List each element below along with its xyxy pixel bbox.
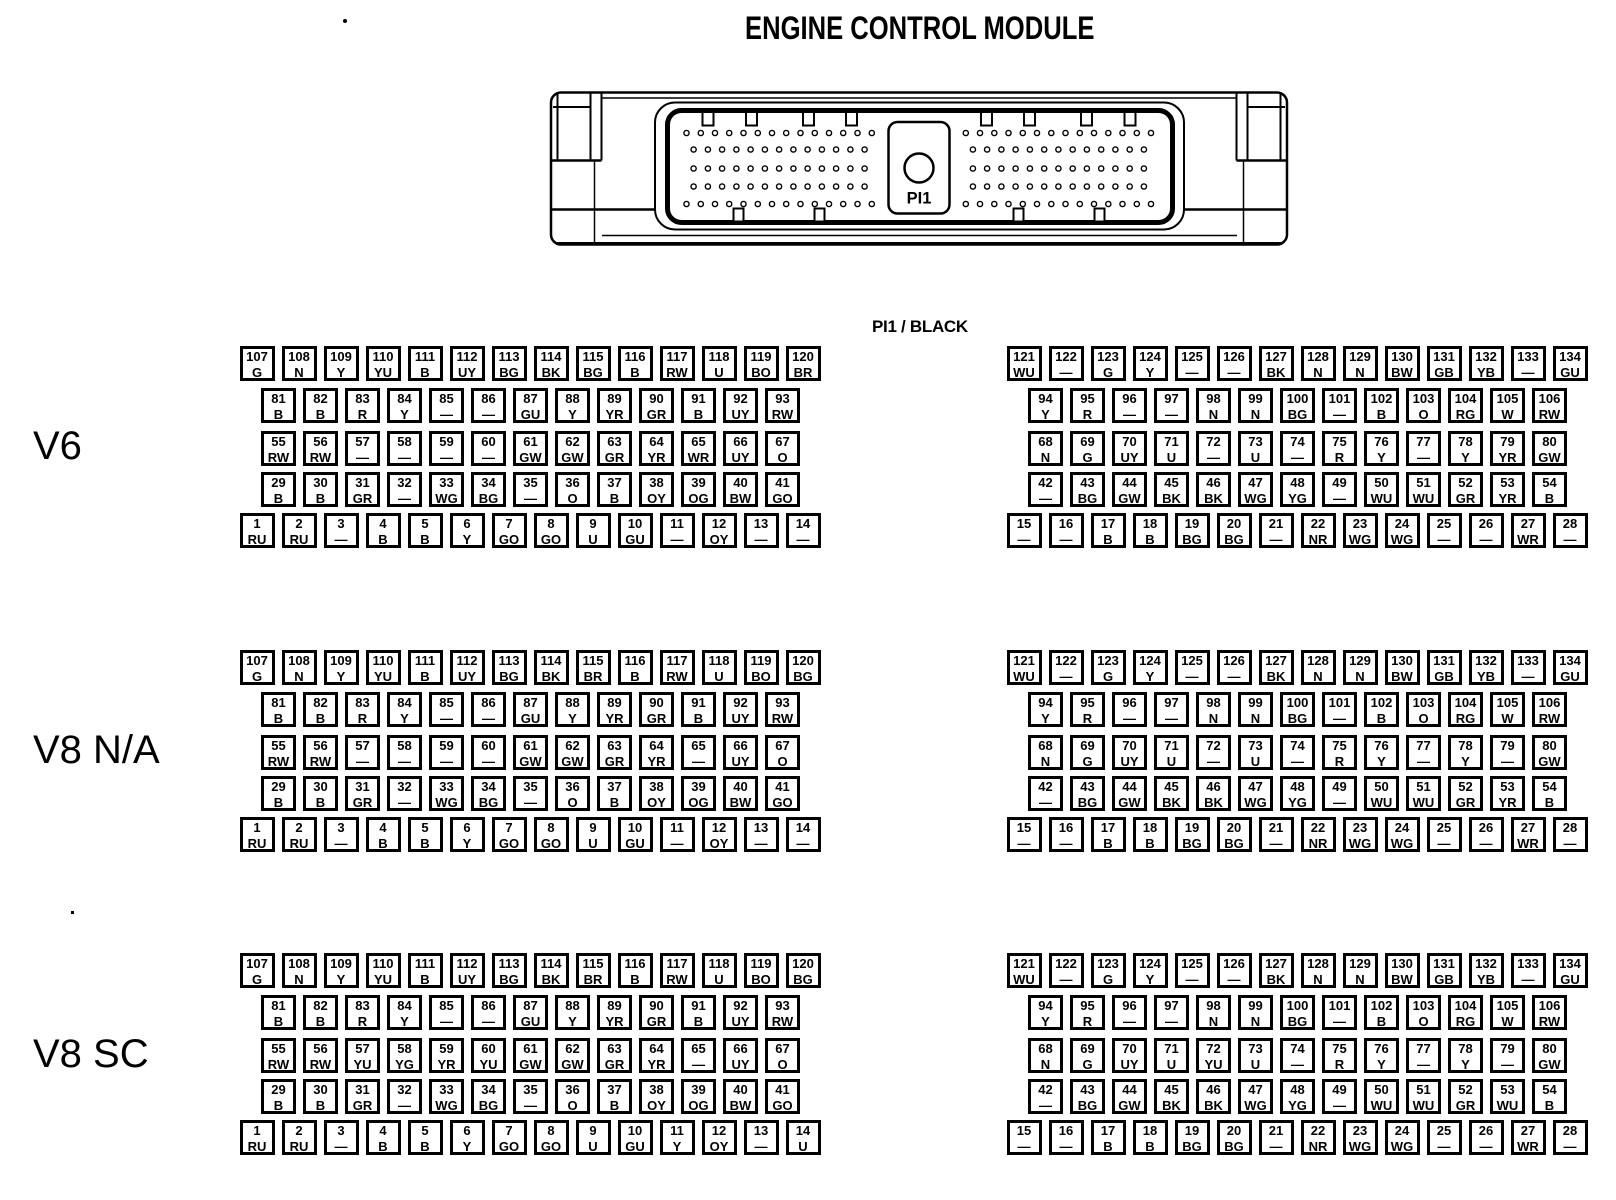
svg-text:PI1: PI1: [907, 190, 932, 208]
